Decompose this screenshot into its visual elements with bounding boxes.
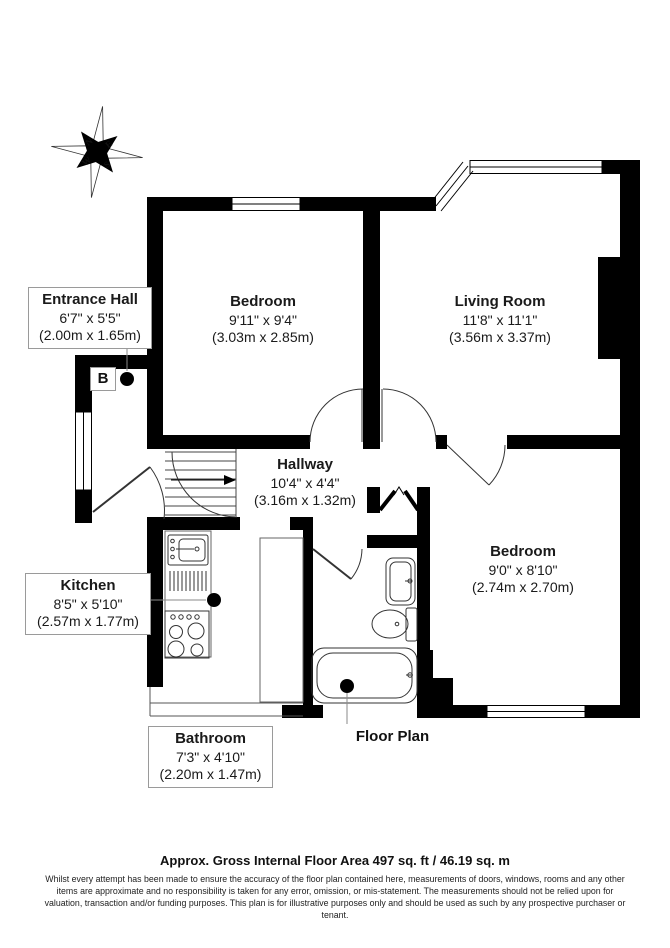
bedroom1-imperial: 9'11" x 9'4" <box>229 312 297 328</box>
kitchen-label: Kitchen 8'5" x 5'10" (2.57m x 1.77m) <box>25 573 151 635</box>
door-bathroom <box>313 549 362 579</box>
kitchen-dot <box>207 593 221 607</box>
window-livingroom-top <box>470 161 602 174</box>
door-bedroom1 <box>310 389 363 442</box>
kitchen-fixtures <box>165 531 303 702</box>
footer-area-line: Approx. Gross Internal Floor Area 497 sq… <box>0 853 670 868</box>
bath-icon <box>312 648 417 703</box>
window-entrance-left <box>76 412 92 490</box>
entrance-hall-label: Entrance Hall 6'7" x 5'5" (2.00m x 1.65m… <box>28 287 152 349</box>
hallway-imperial: 10'4" x 4'4" <box>271 475 340 491</box>
bedroom2-imperial: 9'0" x 8'10" <box>489 562 558 578</box>
living-room-imperial: 11'8" x 11'1" <box>463 312 538 328</box>
bedroom2-name: Bedroom <box>433 543 613 562</box>
entrance-hall-imperial: 6'7" x 5'5" <box>59 310 120 326</box>
bedroom1-name: Bedroom <box>173 293 353 312</box>
hob-icon <box>165 611 209 658</box>
bathroom-name: Bathroom <box>151 730 270 749</box>
entrance-hall-name: Entrance Hall <box>31 291 149 310</box>
floor-plan-page: N E S W Entrance Hall 6'7" x 5'5" (2.00m… <box>0 0 670 948</box>
bathroom-imperial: 7'3" x 4'10" <box>176 749 245 765</box>
kitchen-metric: (2.57m x 1.77m) <box>37 613 139 629</box>
bedroom2-metric: (2.74m x 2.70m) <box>472 579 574 595</box>
window-bay-angled <box>432 162 473 211</box>
living-room-name: Living Room <box>410 293 590 312</box>
door-bedroom2 <box>447 445 505 485</box>
bedroom2-label: Bedroom 9'0" x 8'10" (2.74m x 2.70m) <box>433 543 613 597</box>
toilet-icon <box>372 608 417 641</box>
kitchen-name: Kitchen <box>28 577 148 596</box>
hallway-label: Hallway 10'4" x 4'4" (3.16m x 1.32m) <box>220 456 390 510</box>
window-bedroom1-top <box>232 198 300 211</box>
sink-icon <box>168 535 208 565</box>
hallway-name: Hallway <box>220 456 390 475</box>
bathroom-fixtures <box>312 558 417 703</box>
hallway-metric: (3.16m x 1.32m) <box>254 492 356 508</box>
living-room-metric: (3.56m x 3.37m) <box>449 329 551 345</box>
bedroom1-label: Bedroom 9'11" x 9'4" (3.03m x 2.85m) <box>173 293 353 347</box>
living-room-label: Living Room 11'8" x 11'1" (3.56m x 3.37m… <box>410 293 590 347</box>
kitchen-imperial: 8'5" x 5'10" <box>54 596 123 612</box>
footer-disclaimer: Whilst every attempt has been made to en… <box>39 874 631 922</box>
bathroom-label: Bathroom 7'3" x 4'10" (2.20m x 1.47m) <box>148 726 273 788</box>
basin-icon <box>386 558 415 605</box>
window-bedroom2-bottom <box>487 706 585 718</box>
walls <box>75 160 640 718</box>
compass-icon: N E S W <box>46 101 147 202</box>
door-livingroom <box>382 389 436 442</box>
entrance-hall-dot <box>120 372 134 386</box>
plan-title: Floor Plan <box>330 728 455 745</box>
draining-board-icon <box>170 571 206 591</box>
door-front <box>93 467 164 519</box>
bedroom1-metric: (3.03m x 2.85m) <box>212 329 314 345</box>
entrance-hall-metric: (2.00m x 1.65m) <box>39 327 141 343</box>
bathroom-metric: (2.20m x 1.47m) <box>160 766 262 782</box>
boiler-label: B <box>90 367 116 391</box>
bathroom-dot <box>340 679 354 693</box>
